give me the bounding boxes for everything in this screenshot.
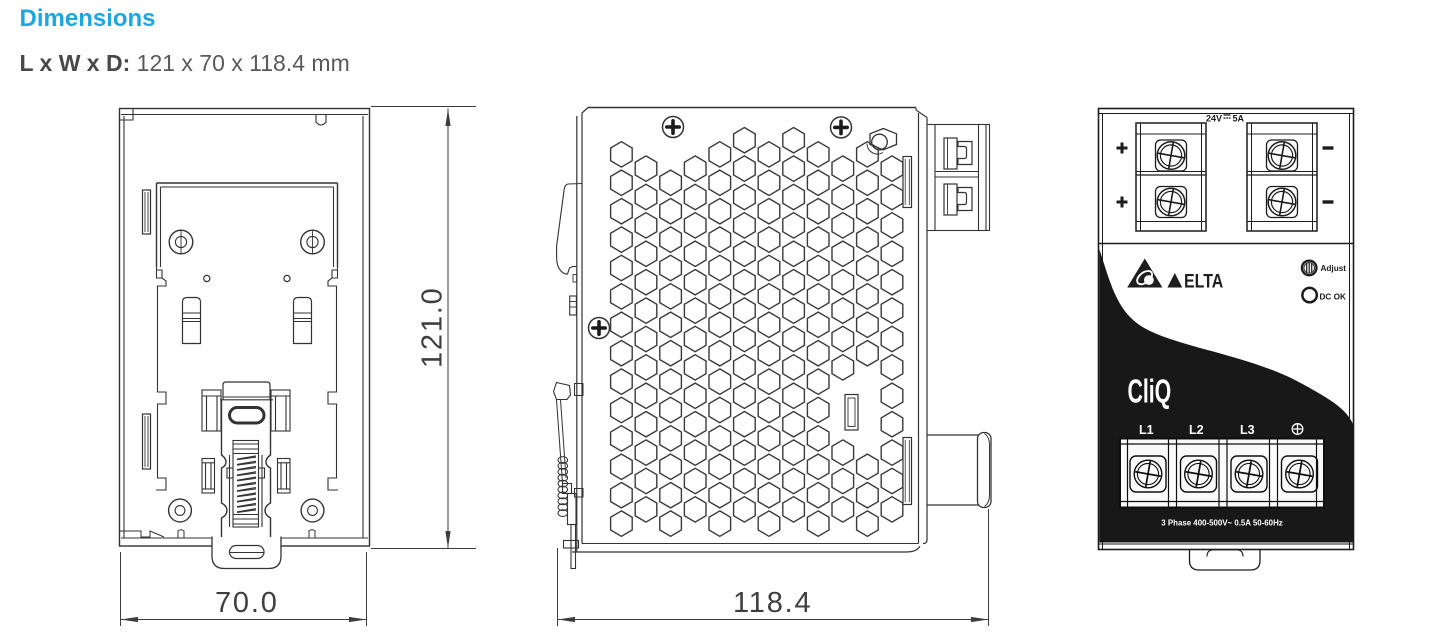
- svg-text:118.4: 118.4: [733, 587, 812, 619]
- svg-text:3 Phase 400-500V~ 0.5A 50-60Hz: 3 Phase 400-500V~ 0.5A 50-60Hz: [1161, 519, 1282, 528]
- svg-text:Adjust: Adjust: [1321, 264, 1347, 273]
- svg-text:121.0: 121.0: [417, 286, 449, 368]
- svg-text:ELTA: ELTA: [1184, 270, 1224, 292]
- svg-text:L1: L1: [1139, 423, 1154, 437]
- svg-text:70.0: 70.0: [215, 587, 279, 619]
- svg-text:L3: L3: [1240, 423, 1255, 437]
- svg-text:L2: L2: [1189, 423, 1204, 437]
- svg-text:L x W x D: 121 x 70 x 118.4 mm: L x W x D: 121 x 70 x 118.4 mm: [20, 50, 350, 76]
- svg-text:Dimensions: Dimensions: [20, 5, 156, 32]
- svg-text:24V: 24V: [1206, 114, 1222, 124]
- svg-text:CliQ: CliQ: [1128, 373, 1172, 410]
- svg-text:DC OK: DC OK: [1320, 293, 1346, 302]
- svg-text:5A: 5A: [1233, 114, 1245, 124]
